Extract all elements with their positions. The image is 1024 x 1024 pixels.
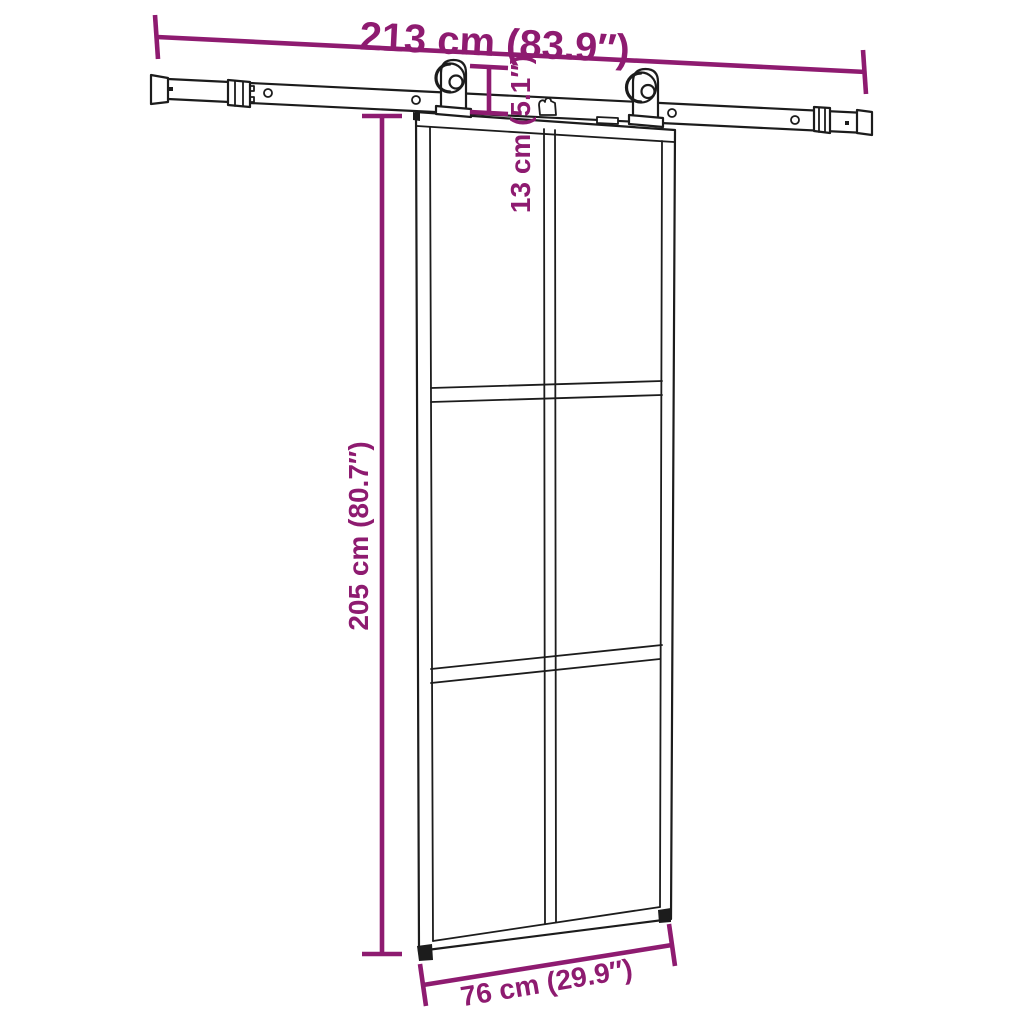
door-top-plate: [597, 117, 618, 124]
dimension-label-door-height: 205 cm (80.7″): [343, 441, 374, 630]
roller-hanger-right: [626, 69, 663, 127]
screw-hole: [412, 96, 420, 104]
dimension-label-track-length: 213 cm (83.9″): [359, 14, 631, 71]
anti-jump-block: [539, 98, 556, 115]
hanger-foot: [629, 115, 663, 127]
screw-hole: [668, 109, 676, 117]
rail-connector-notch: [250, 86, 254, 91]
floor-guide-left: [417, 944, 433, 961]
dimension-tick: [470, 112, 508, 114]
screw-hole: [264, 89, 272, 97]
door-panel: [413, 112, 675, 961]
dimension-tick: [863, 50, 866, 94]
hanger-bolt: [450, 76, 463, 89]
dimension-label-door-width: 76 cm (29.9″): [458, 953, 634, 1012]
dimension-tick: [420, 964, 426, 1006]
screw-hole: [791, 116, 799, 124]
roller-hanger-left: [436, 60, 472, 117]
door-mullion-line: [555, 130, 556, 922]
diagram-canvas: 213 cm (83.9″) 13 cm (5.1″) 205 cm (80.7…: [0, 0, 1024, 1024]
dimension-tick: [669, 924, 675, 966]
dimension-door-height: 205 cm (80.7″): [343, 116, 402, 954]
door-corner-bracket: [413, 112, 420, 121]
rail-connector-right: [814, 107, 830, 133]
rail-cap-screw-left: [169, 87, 173, 91]
dimension-diagram: 213 cm (83.9″) 13 cm (5.1″) 205 cm (80.7…: [0, 0, 1024, 1024]
door-mullion-line: [544, 129, 545, 924]
dimension-tick: [470, 66, 508, 68]
rail-connector-left: [228, 80, 250, 107]
rail-end-cap-left: [151, 75, 168, 104]
hanger-bolt: [642, 85, 655, 98]
rail-cap-screw-right: [845, 121, 849, 125]
floor-guide-right: [658, 908, 671, 923]
rail-end-cap-right: [857, 110, 872, 135]
dimension-label-drop-height: 13 cm (5.1″): [505, 55, 536, 213]
rail-connector-notch: [250, 97, 254, 102]
dimension-tick: [155, 15, 158, 59]
hanger-foot: [436, 106, 471, 117]
